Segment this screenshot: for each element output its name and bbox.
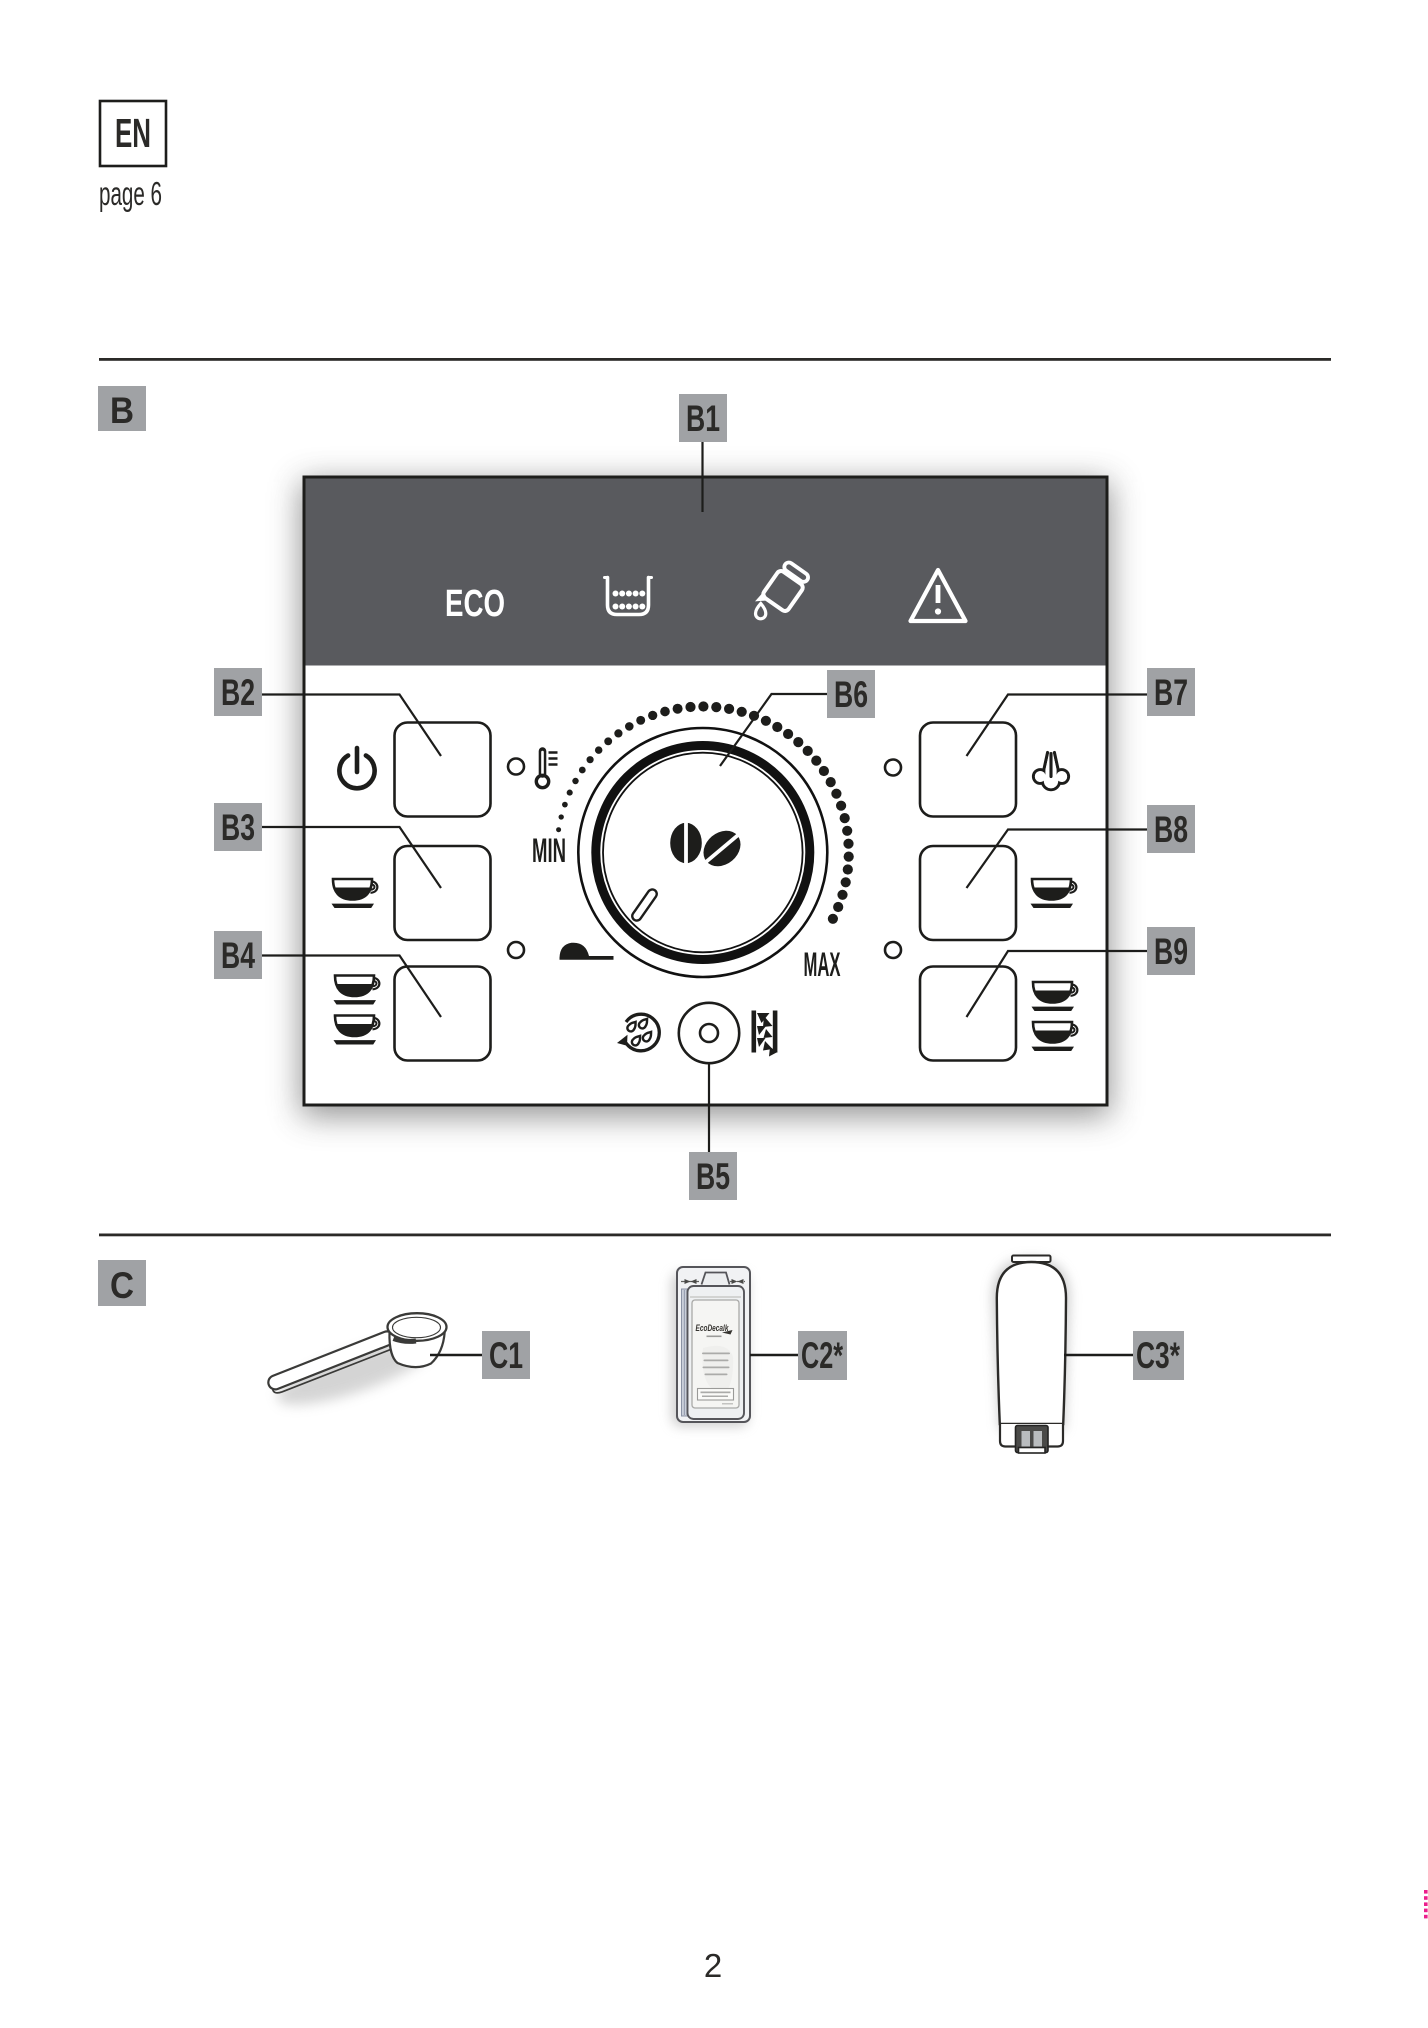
svg-text:B: B (110, 390, 134, 431)
svg-text:C3*: C3* (1136, 1335, 1180, 1376)
svg-text:B4: B4 (221, 935, 255, 976)
svg-text:2: 2 (704, 1947, 722, 1984)
svg-text:B6: B6 (834, 674, 868, 715)
svg-text:B1: B1 (686, 398, 720, 439)
svg-text:MAX: MAX (804, 946, 841, 984)
svg-text:B7: B7 (1154, 672, 1188, 713)
svg-text:ECO: ECO (445, 583, 505, 625)
svg-text:page 6: page 6 (99, 175, 162, 212)
svg-text:B8: B8 (1154, 809, 1188, 850)
svg-text:EN: EN (115, 110, 151, 156)
svg-text:MIN: MIN (532, 832, 566, 870)
svg-text:B2: B2 (221, 672, 255, 713)
svg-text:B3: B3 (221, 807, 255, 848)
svg-text:B9: B9 (1154, 931, 1188, 972)
svg-text:C: C (110, 1265, 134, 1306)
svg-text:B5: B5 (696, 1156, 730, 1197)
svg-text:C1: C1 (489, 1335, 523, 1376)
svg-text:C2*: C2* (801, 1335, 843, 1376)
